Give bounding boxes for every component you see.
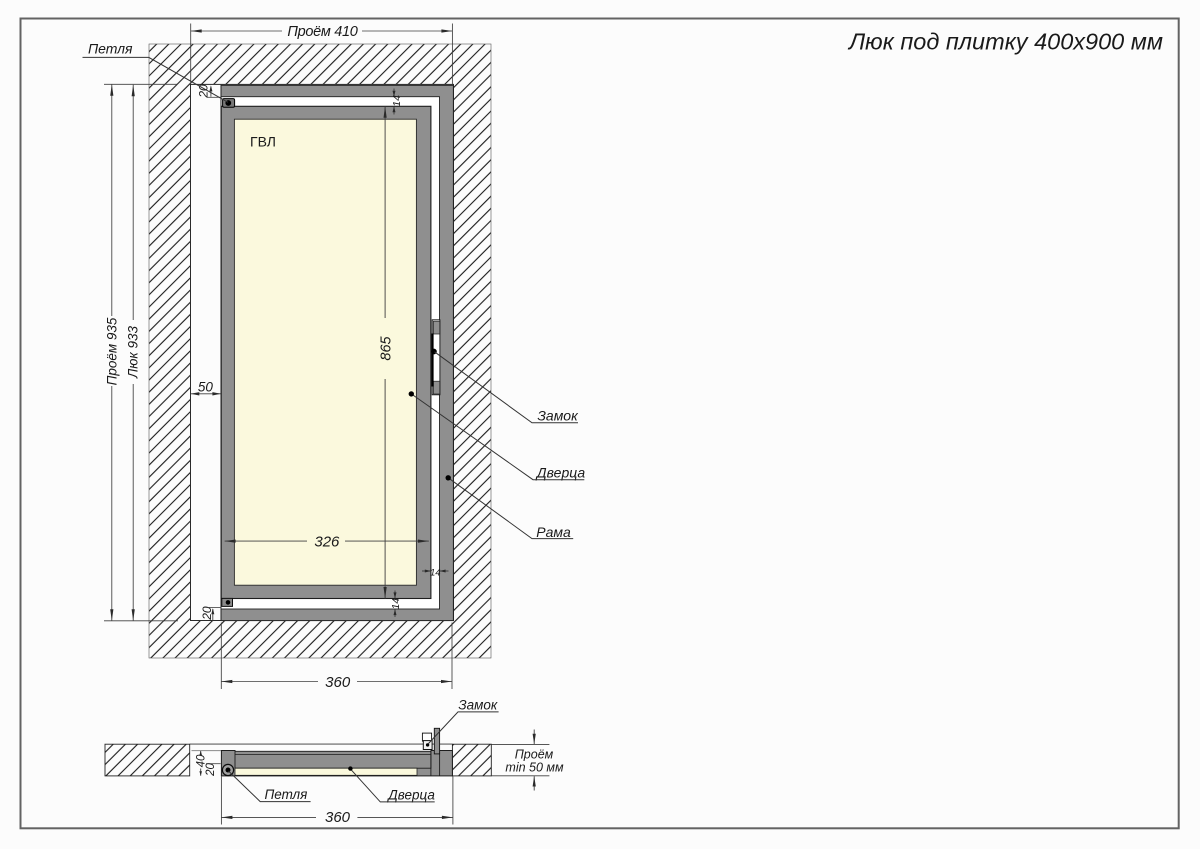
svg-text:Проём: Проём	[515, 748, 554, 762]
svg-text:14: 14	[430, 568, 441, 579]
svg-text:326: 326	[314, 534, 340, 551]
svg-text:ГВЛ: ГВЛ	[250, 134, 276, 150]
svg-text:Люк под плитку 400х900 мм: Люк под плитку 400х900 мм	[847, 29, 1163, 55]
svg-text:50: 50	[198, 379, 214, 394]
svg-text:865: 865	[379, 335, 395, 360]
svg-text:20: 20	[205, 763, 217, 777]
svg-text:Петля: Петля	[264, 787, 307, 802]
svg-text:14: 14	[391, 95, 403, 107]
svg-text:Замок: Замок	[537, 407, 579, 423]
svg-text:360: 360	[325, 674, 351, 691]
svg-text:360: 360	[325, 809, 351, 826]
svg-text:Люк 933: Люк 933	[126, 325, 141, 379]
svg-text:Петля: Петля	[88, 41, 133, 57]
svg-text:Проём 410: Проём 410	[287, 24, 357, 40]
svg-text:min 50 мм: min 50 мм	[505, 761, 564, 775]
svg-text:Рама: Рама	[536, 524, 571, 540]
svg-text:20: 20	[200, 606, 214, 621]
svg-text:Проём 935: Проём 935	[105, 317, 120, 385]
svg-text:Дверца: Дверца	[535, 465, 586, 481]
svg-text:14: 14	[390, 598, 402, 610]
svg-text:Замок: Замок	[458, 697, 498, 712]
svg-text:Дверца: Дверца	[386, 787, 435, 802]
